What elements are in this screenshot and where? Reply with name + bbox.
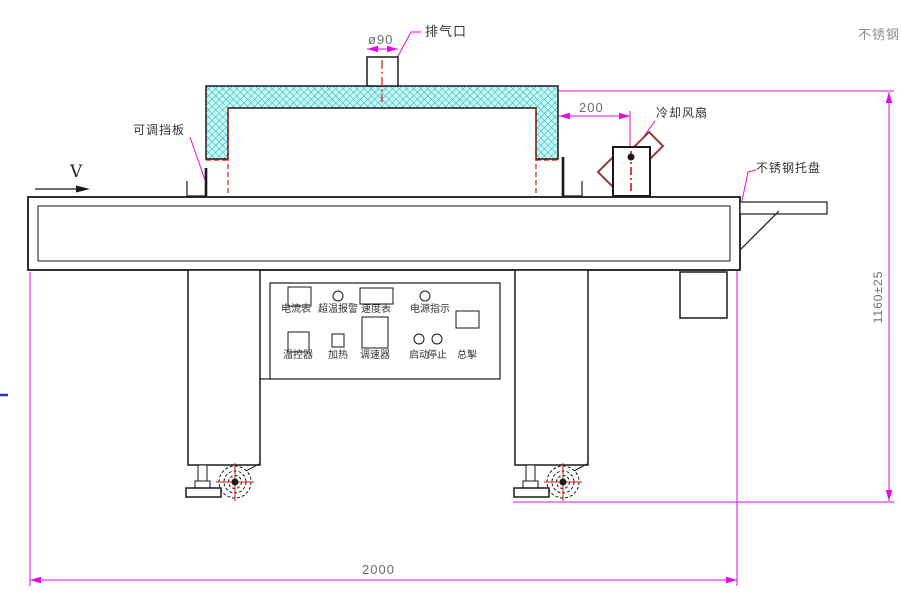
dim-2000-text: 2000 [362, 563, 395, 576]
stainless-tray [740, 202, 827, 250]
foot-left [186, 465, 221, 497]
speed-meter-label: 速度表 [357, 305, 395, 315]
caster-left-hub [232, 479, 239, 486]
temp-controller-control [288, 332, 309, 352]
stainless-tray-label: 不锈钢托盘 [756, 162, 821, 174]
caster-left [216, 463, 259, 501]
speed-regulator-label: 调速器 [356, 351, 394, 361]
start-button-control [414, 334, 424, 344]
power-indicator-label: 电源指示 [409, 305, 451, 315]
caster-right-hub [560, 479, 567, 486]
junction-box [680, 272, 727, 318]
leg-left [188, 270, 260, 465]
leg-right [515, 270, 588, 465]
main-switch-label: 总掣 [455, 351, 479, 361]
foot-right [514, 465, 549, 497]
heating-label: 加热 [326, 351, 350, 361]
machine-line-art [0, 0, 901, 601]
exhaust-diameter-label: ø90 [368, 33, 393, 46]
fan-hub-dot [628, 154, 635, 161]
corner-note-stainless: 不锈钢 [858, 28, 900, 41]
tray-plate [740, 202, 827, 214]
baffle-brackets [187, 157, 582, 196]
overtemp-alarm-label: 超温报警 [317, 305, 359, 315]
dim-1160-text: 1160±25 [872, 267, 886, 327]
cooling-fan-label: 冷却风扇 [656, 107, 708, 119]
baffle-right-channel [563, 181, 582, 196]
stop-button-control [432, 334, 442, 344]
chamber-hidden-lines [206, 108, 558, 196]
control-panel [260, 283, 500, 379]
power-indicator-light [420, 291, 430, 301]
leader-baffle [190, 137, 205, 180]
speed-meter-control [360, 288, 393, 304]
tray-brace [740, 211, 779, 250]
baffle-left-channel [187, 181, 206, 196]
adjustable-baffle-label: 可调挡板 [133, 124, 185, 136]
foot-right-nut [523, 481, 538, 488]
exhaust-port-label: 排气口 [425, 25, 467, 38]
dim-200-text: 200 [579, 101, 604, 114]
leader-tray [742, 170, 756, 201]
caster-right [544, 463, 587, 501]
heating-switch-control [332, 334, 344, 347]
engineering-drawing-canvas: 排气口 ø90 可调挡板 冷却风扇 不锈钢托盘 不锈钢 V 200 2000 1… [0, 0, 901, 601]
main-switch-control [456, 311, 479, 328]
overtemp-alarm-light [333, 291, 343, 301]
stop-label: 停止 [425, 351, 449, 361]
foot-right-plate [514, 488, 549, 497]
foot-left-nut [195, 481, 210, 488]
ammeter-label: 电流表 [277, 305, 315, 315]
velocity-label: V [70, 164, 82, 181]
speed-regulator-control [362, 317, 388, 348]
direction-arrow-head [76, 186, 90, 193]
foot-left-plate [186, 488, 221, 497]
conveyor-table-inner [38, 206, 730, 261]
leader-exhaust-port [397, 32, 421, 58]
temp-controller-label: 温控器 [279, 351, 317, 361]
direction-arrow [35, 186, 90, 193]
